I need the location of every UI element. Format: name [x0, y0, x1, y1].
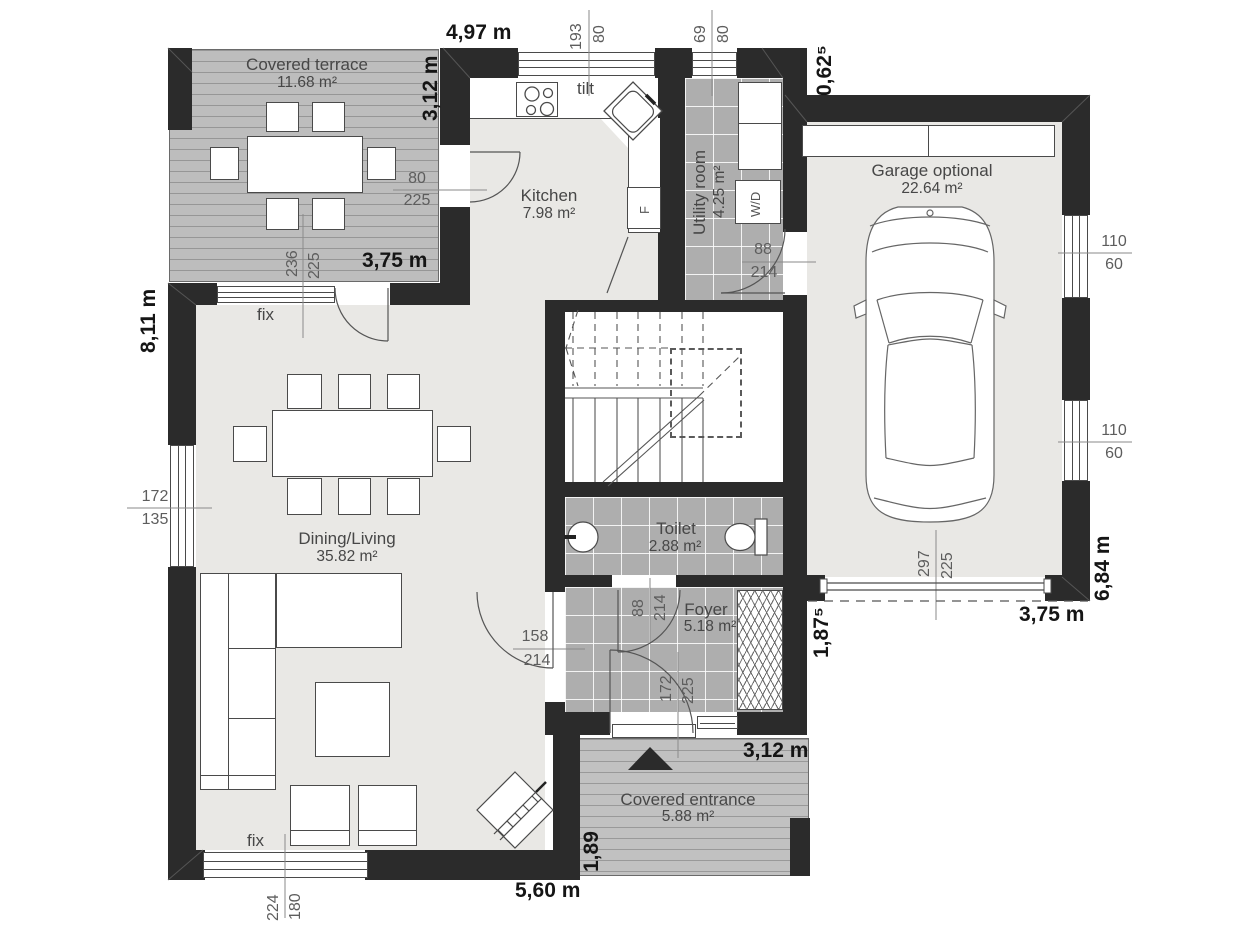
dim-living-foyer-door-h: 214 — [519, 652, 555, 670]
room-label-foyer: Foyer — [684, 600, 727, 620]
dim-entrance-door-h: 225 — [680, 666, 698, 716]
dim-living-window-bottom-w: 224 — [265, 882, 283, 929]
dim-garage-depth: 6,84 m — [1091, 534, 1115, 602]
room-label-utility-group: Utility room 4.25 m² — [690, 146, 729, 238]
dim-kitchen-window-w: 193 — [568, 12, 586, 62]
room-area-utility: 4.25 m² — [711, 146, 729, 238]
dim-toilet-door-w: 88 — [630, 590, 648, 626]
dim-kitchen-window-h: 80 — [591, 12, 609, 56]
dim-terrace-living-door-h: 225 — [306, 236, 324, 296]
room-label-kitchen: Kitchen — [521, 186, 578, 206]
room-area-garage: 22.64 m² — [901, 180, 962, 198]
dim-left-height: 8,11 m — [137, 282, 161, 360]
dim-garage-door-h: 225 — [939, 538, 957, 594]
dim-foyer-offset: 1,87⁵ — [810, 603, 834, 663]
dim-garage-window1-w: 110 — [1096, 233, 1132, 251]
fireplace-icon — [477, 772, 553, 848]
room-label-utility: Utility room — [690, 146, 710, 238]
dim-terrace-depth: 3,12 m — [419, 50, 443, 126]
dim-garage-window1-h: 60 — [1099, 256, 1129, 274]
tilt-window-label: tilt — [577, 79, 594, 99]
dim-living-window-bottom-h: 180 — [287, 884, 305, 929]
dim-entrance-door-w: 172 — [658, 664, 676, 714]
fix-window-label: fix — [257, 305, 274, 325]
dim-terrace-width: 3,75 m — [362, 249, 427, 273]
room-label-living: Dining/Living — [298, 529, 395, 549]
dim-utility-garage-door-h: 214 — [746, 264, 782, 282]
room-area-terrace: 11.68 m² — [277, 74, 337, 92]
room-label-terrace: Covered terrace — [246, 55, 368, 75]
dim-entrance-depth: 1,89 — [580, 826, 604, 878]
room-label-entrance: Covered entrance — [620, 790, 755, 810]
dim-terrace-kitchen-door-w: 80 — [399, 170, 435, 188]
dim-garage-door-w: 297 — [916, 536, 934, 592]
toilet-bowl-icon — [725, 524, 755, 551]
fix-window-label: fix — [247, 831, 264, 851]
dim-entrance-width: 3,12 m — [743, 739, 808, 763]
room-area-foyer: 5.18 m² — [684, 618, 737, 636]
stove-burners-icon — [525, 87, 554, 116]
washer-dryer-label: W/D — [748, 186, 763, 222]
dim-bottom-width: 5,60 m — [515, 879, 580, 903]
room-area-toilet: 2.88 m² — [649, 538, 702, 556]
room-area-living: 35.82 m² — [316, 548, 377, 566]
dim-utility-window-w: 69 — [692, 12, 710, 56]
door-swings — [335, 152, 785, 733]
dim-living-window-left-h: 135 — [137, 511, 173, 529]
fridge-label: F — [637, 197, 652, 223]
dim-living-window-left-w: 172 — [137, 488, 173, 506]
dim-garage-window2-w: 110 — [1096, 422, 1132, 440]
entrance-arrow-icon — [628, 747, 673, 770]
dim-living-foyer-door-w: 158 — [517, 628, 553, 646]
dim-utility-garage-door-w: 88 — [748, 241, 778, 259]
floor-plan: Covered terrace 11.68 m² Kitchen 7.98 m²… — [0, 0, 1254, 929]
toilet-tank-icon — [755, 519, 767, 555]
staircase — [565, 310, 740, 486]
dim-utility-window-h: 80 — [715, 12, 733, 56]
room-label-toilet: Toilet — [656, 519, 696, 539]
room-area-entrance: 5.88 m² — [662, 808, 715, 826]
car-icon — [854, 207, 1006, 522]
kitchen-sink-icon — [604, 82, 662, 140]
room-label-garage: Garage optional — [872, 161, 993, 181]
dim-top-width: 4,97 m — [446, 21, 511, 45]
room-area-kitchen: 7.98 m² — [523, 205, 576, 223]
dim-toilet-door-h: 214 — [652, 586, 670, 630]
dim-terrace-kitchen-door-h: 225 — [397, 192, 437, 210]
dim-terrace-living-door-w: 236 — [284, 234, 302, 294]
dim-garage-window2-h: 60 — [1099, 445, 1129, 463]
dim-garage-width: 3,75 m — [1019, 603, 1084, 627]
dim-garage-offset: 0,62⁵ — [813, 42, 837, 100]
